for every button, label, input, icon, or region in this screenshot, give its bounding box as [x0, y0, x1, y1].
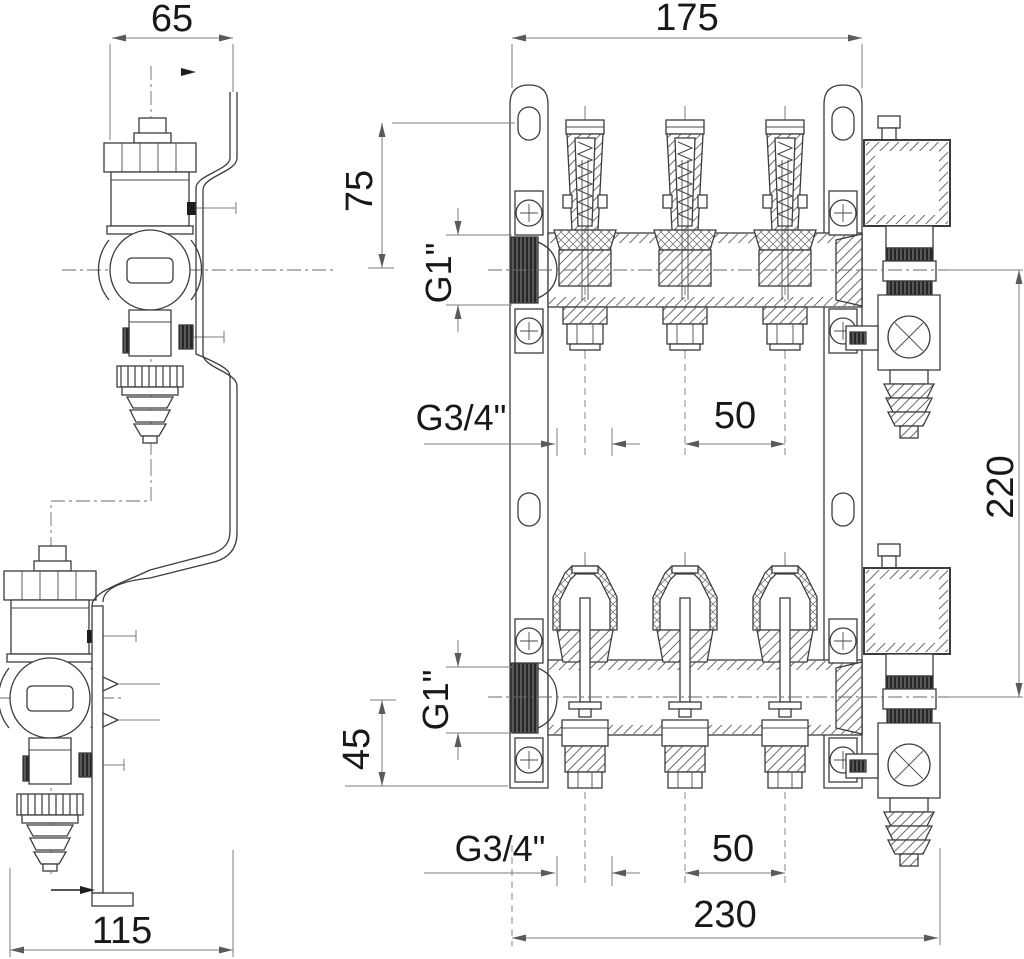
clamp-bolt-arrow [103, 677, 118, 691]
valve-unit-3 [754, 106, 816, 356]
dim-label-230: 230 [693, 894, 756, 936]
dim-label-50-lower: 50 [712, 828, 754, 870]
clamp-bolt-arrow [103, 713, 118, 727]
flow-direction-arrow-head [181, 68, 196, 76]
manifold-wall [549, 297, 861, 306]
lower-front-view [488, 544, 950, 866]
lower-side-valve [0, 546, 136, 871]
upper-side-valve [98, 118, 236, 443]
clamp-screw [829, 619, 857, 663]
routing-centerline [51, 462, 151, 545]
dim-label-45: 45 [336, 728, 378, 770]
thread-label-g34-upper: G3/4" [416, 397, 507, 438]
upper-front-view [488, 106, 950, 438]
clamp-screw [515, 309, 543, 353]
dim-label-75: 75 [339, 170, 381, 212]
wall-bracket-outer [103, 578, 150, 602]
wall-bracket-inner [92, 570, 150, 606]
thread-label-g34-lower: G3/4" [455, 828, 546, 869]
clamp-screw [515, 191, 543, 235]
clamp-screw [829, 191, 857, 235]
wall-bracket-plate [92, 606, 103, 893]
valve-unit-1 [554, 106, 616, 356]
clamp-screw [515, 738, 543, 782]
drawing-sheet: 65 175 75 G1" G3/4" 50 220 G1" 45 G3/4" … [0, 0, 1024, 959]
dim-label-50-upper: 50 [714, 395, 756, 437]
valve-unit-2 [654, 106, 716, 356]
dim-label-220: 220 [980, 455, 1022, 518]
dim-label-65: 65 [151, 0, 193, 40]
manifold-technical-drawing: 65 175 75 G1" G3/4" 50 220 G1" 45 G3/4" … [0, 0, 1024, 959]
g1-inlet-thread [511, 663, 538, 733]
thread-label-g1-upper: G1" [418, 243, 459, 304]
dim-label-175: 175 [655, 0, 718, 39]
wall-bracket-foot [92, 893, 133, 906]
dim-label-115: 115 [92, 910, 153, 952]
thread-label-g1-lower: G1" [415, 670, 456, 731]
lower-side-view [0, 462, 160, 906]
clamp-screw [515, 619, 543, 663]
